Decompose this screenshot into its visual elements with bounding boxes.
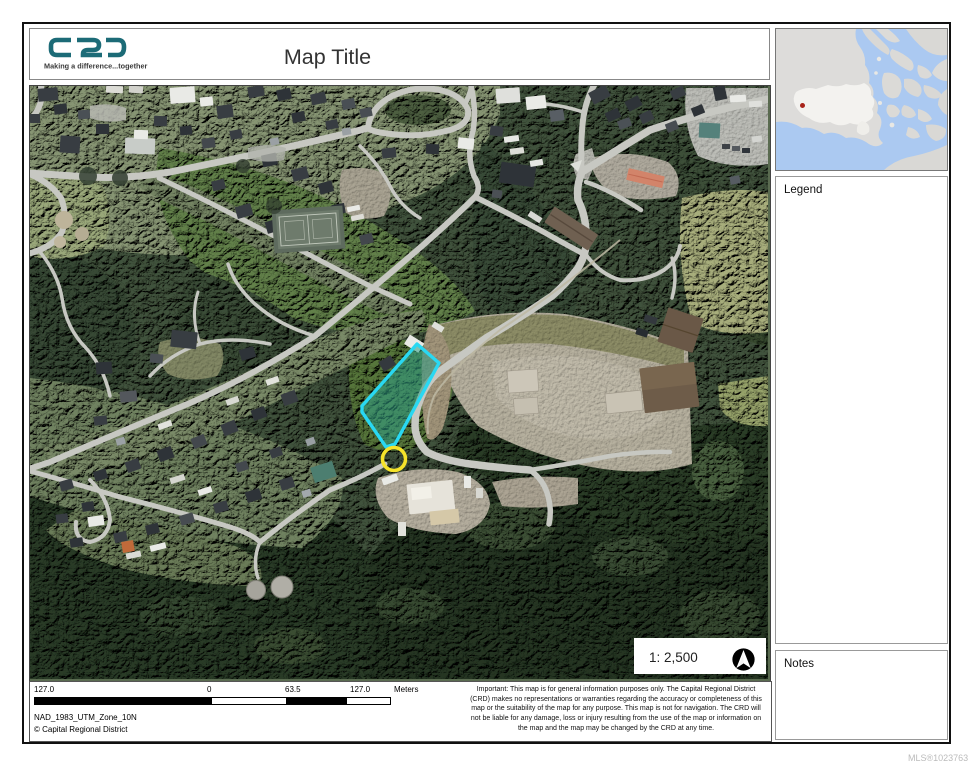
svg-text:Making a difference...together: Making a difference...together bbox=[44, 62, 148, 71]
